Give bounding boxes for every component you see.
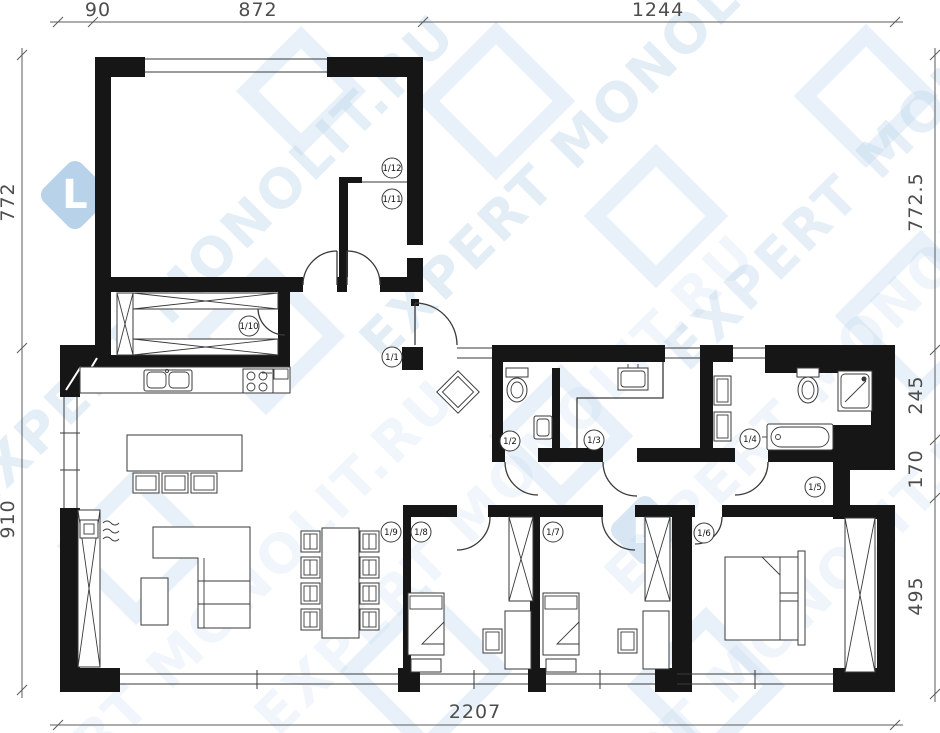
bed-double [725, 557, 798, 640]
svg-text:1/8: 1/8 [414, 528, 428, 538]
svg-text:1/11: 1/11 [382, 195, 401, 205]
dim-top-1244: 1244 [632, 0, 684, 21]
coffee-table [141, 578, 168, 625]
room-label-1-9: 1/9 [381, 522, 401, 542]
dim-left-910: 910 [0, 499, 19, 538]
room-label-1-8: 1/8 [411, 522, 431, 542]
room-label-1-12: 1/12 [382, 158, 402, 178]
svg-text:1/3: 1/3 [587, 436, 601, 446]
furniture-bathrooms [506, 362, 872, 450]
svg-text:1/7: 1/7 [546, 528, 560, 538]
bed-single [408, 593, 444, 655]
bath-door-arc [735, 462, 768, 495]
furniture-bedrooms [408, 517, 875, 672]
room-label-1-3: 1/3 [584, 430, 604, 450]
svg-text:1/9: 1/9 [384, 528, 398, 538]
garage-door-arc [347, 251, 380, 285]
headboard [798, 551, 805, 645]
garage-door-arc [303, 251, 337, 285]
dim-left-772: 772 [0, 182, 19, 221]
dim-right-772-5: 772.5 [905, 172, 927, 231]
dim-right-170: 170 [905, 449, 927, 488]
washer [714, 376, 731, 405]
dim-bottom-2207: 2207 [449, 701, 501, 723]
furniture-kitchen [80, 367, 290, 493]
floorplan-page: L L EXPERT MONOLIT.RU EXPERT MONOLIT.RU … [0, 0, 940, 733]
svg-text:1/4: 1/4 [743, 435, 757, 445]
floorplan-drawing: 1/1 1/2 1/3 1/4 1/5 1/6 1/7 1/8 1/9 1/10… [0, 0, 940, 733]
dim-right-245: 245 [905, 375, 927, 414]
nightstand [546, 659, 576, 672]
room-label-1-10: 1/10 [239, 316, 259, 336]
svg-text:1/5: 1/5 [808, 483, 822, 493]
svg-text:1/6: 1/6 [697, 529, 711, 539]
kitchen-island [127, 435, 242, 471]
room-label-1-1: 1/1 [382, 347, 402, 367]
room-label-1-6: 1/6 [694, 523, 714, 543]
desk [643, 611, 669, 669]
bedroom2-door-arc [602, 517, 635, 550]
dryer [714, 412, 731, 441]
svg-text:1/1: 1/1 [385, 353, 399, 363]
entry-door-arc [415, 303, 457, 345]
svg-text:1/2: 1/2 [503, 437, 517, 447]
entry-pouf [437, 371, 479, 413]
shower [838, 371, 872, 411]
bedroom1-door-arc [457, 517, 490, 550]
svg-text:1/12: 1/12 [382, 164, 401, 174]
dim-right-495: 495 [905, 576, 927, 615]
room-label-1-11: 1/11 [382, 189, 402, 209]
room-label-1-2: 1/2 [500, 431, 520, 451]
desk [505, 611, 531, 669]
svg-text:1/10: 1/10 [239, 322, 258, 332]
toilet [506, 368, 528, 377]
dim-top-872: 872 [238, 0, 277, 21]
utility-door-arc [603, 462, 637, 496]
bed-single [543, 593, 579, 655]
toilet [797, 368, 819, 377]
room-label-1-7: 1/7 [543, 522, 563, 542]
fireplace [80, 520, 98, 538]
nightstand [411, 659, 441, 672]
room-label-1-5: 1/5 [805, 477, 825, 497]
dining-table [322, 528, 359, 638]
wc-door-arc [505, 462, 538, 495]
dim-top-90: 90 [85, 0, 111, 21]
room-label-1-4: 1/4 [740, 429, 760, 449]
heat-waves [103, 521, 119, 525]
